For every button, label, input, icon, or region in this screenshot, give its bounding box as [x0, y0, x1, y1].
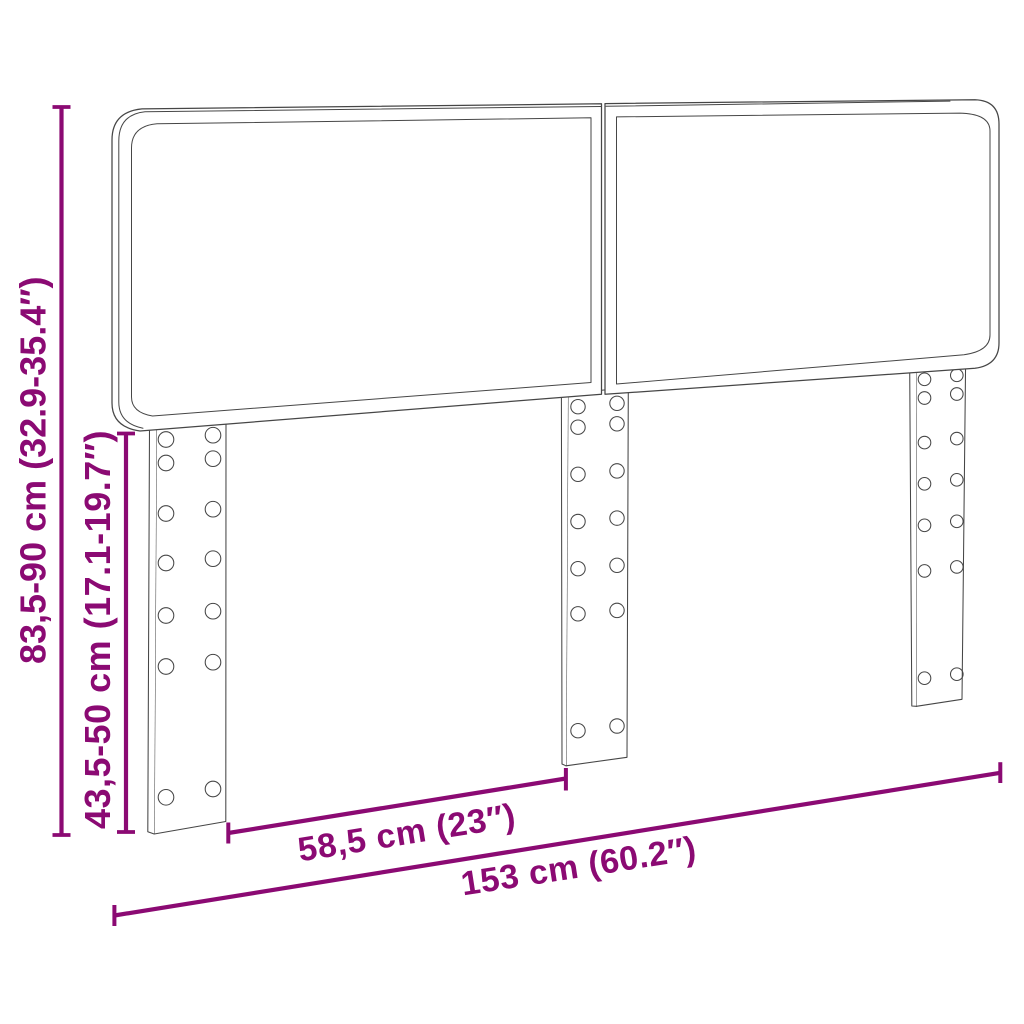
svg-text:43,5-50 cm (17.1-19.7″): 43,5-50 cm (17.1-19.7″): [77, 430, 118, 829]
svg-text:83,5-90 cm (32.9-35.4″): 83,5-90 cm (32.9-35.4″): [13, 277, 54, 664]
